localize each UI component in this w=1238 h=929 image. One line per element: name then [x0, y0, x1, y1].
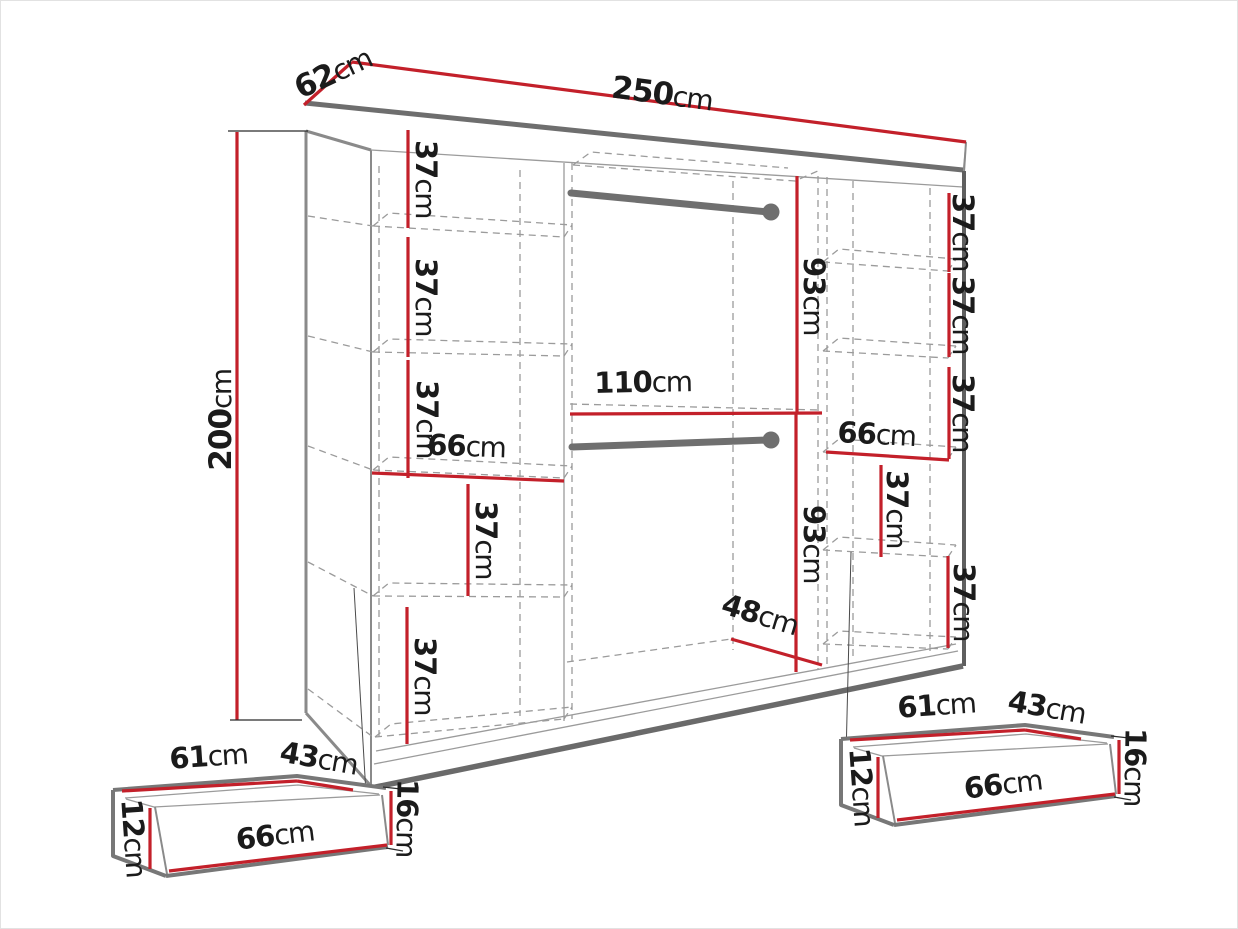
label-drawer1-side-height: 12cm: [114, 798, 153, 878]
label-left-section-1: 37cm: [409, 140, 443, 218]
label-right-shelf-width: 66cm: [837, 415, 917, 453]
label-drawer2-top-width: 61cm: [896, 685, 976, 724]
label-left-section-2: 37cm: [409, 258, 443, 336]
label-left-section-5: 37cm: [408, 637, 442, 715]
label-right-section-5: 37cm: [947, 563, 981, 641]
label-middle-upper-height: 93cm: [797, 257, 831, 335]
label-height: 200cm: [203, 369, 239, 470]
wardrobe-dimension-diagram: 62cm 250cm 200cm 37cm 37cm 37cm 66cm 37c…: [0, 0, 1238, 929]
label-drawer1-front-height: 16cm: [389, 779, 424, 858]
label-right-section-1: 37cm: [946, 193, 980, 271]
label-middle-lower-height: 93cm: [797, 505, 831, 583]
label-drawer1-top-width: 61cm: [168, 736, 248, 775]
label-right-section-4: 37cm: [880, 470, 914, 548]
label-right-section-3: 37cm: [946, 374, 980, 452]
diagram-canvas: 62cm 250cm 200cm 37cm 37cm 37cm 66cm 37c…: [0, 0, 1238, 929]
label-drawer2-front-height: 16cm: [1117, 728, 1152, 807]
label-right-section-2: 37cm: [946, 276, 980, 354]
label-drawer2-side-height: 12cm: [842, 747, 881, 827]
label-left-section-4: 37cm: [469, 501, 503, 579]
label-left-shelf-width: 66cm: [427, 428, 506, 465]
label-middle-width: 110cm: [594, 364, 692, 400]
